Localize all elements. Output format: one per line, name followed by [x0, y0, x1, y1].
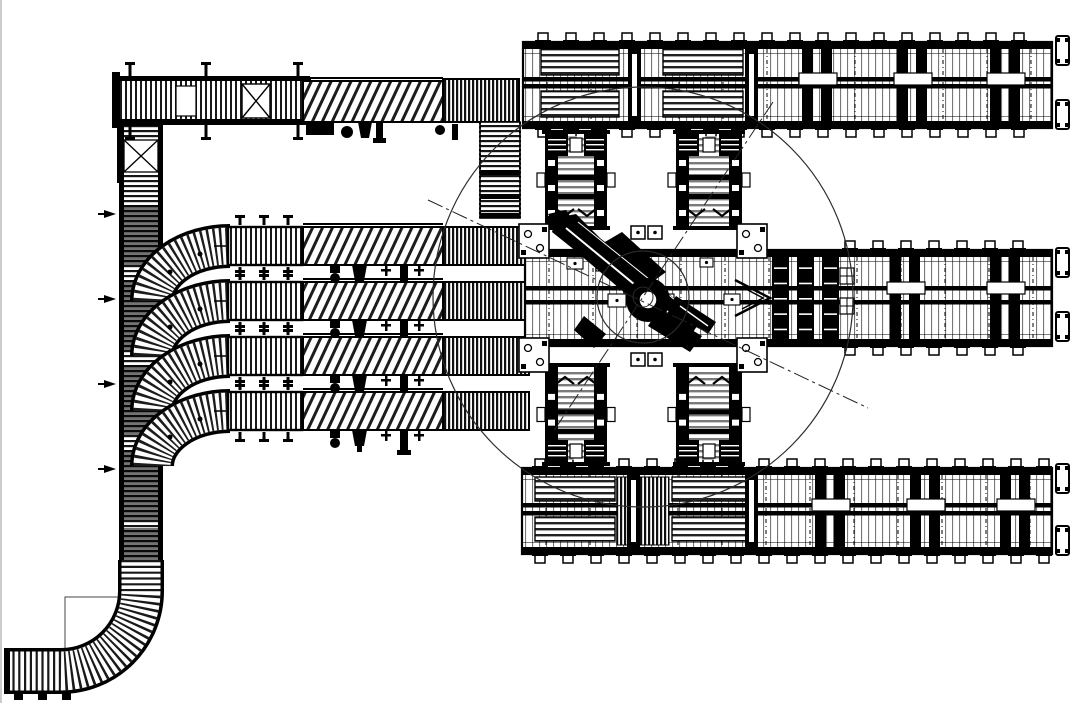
pallet-position — [541, 91, 619, 117]
pallet-position — [535, 517, 615, 541]
pallet-position — [535, 477, 615, 501]
end-bumper — [1056, 248, 1069, 277]
branch-lanes — [152, 215, 529, 466]
top-roller-section — [443, 79, 519, 122]
robot-anchor-plate — [737, 338, 767, 372]
cad-drawing-page — [0, 0, 1080, 703]
straight-roller-section — [228, 392, 302, 430]
end-bumper — [1056, 526, 1069, 555]
side-foot — [742, 173, 750, 187]
top-belt-conveyor — [303, 81, 443, 122]
pallet-line-top — [523, 33, 1069, 137]
side-foot — [607, 173, 615, 187]
roller-section — [443, 282, 529, 320]
straight-roller-section — [228, 227, 302, 265]
roller-section — [443, 392, 529, 430]
straight-roller-section — [228, 282, 302, 320]
roller-section — [443, 227, 529, 265]
pallet-position — [541, 49, 619, 75]
conveyor-end-cap — [112, 72, 120, 128]
pallet-position — [672, 477, 750, 501]
belt-conveyor — [303, 282, 443, 320]
pallet-line-bottom — [522, 459, 1069, 563]
roller-section — [443, 337, 529, 375]
belt-conveyor — [303, 227, 443, 265]
chain-transfer-down-left — [537, 363, 615, 466]
end-bumper — [1056, 100, 1069, 129]
pallet-position — [663, 91, 743, 117]
conveyor-foot — [14, 693, 23, 700]
conveyor-foot — [38, 693, 47, 700]
robot-anchor-plate — [519, 224, 549, 258]
pallet-position — [663, 49, 743, 75]
conveyor-layout-plan-svg — [0, 0, 1080, 703]
cross-brace-window — [242, 84, 270, 118]
robot-anchor-plate — [737, 224, 767, 258]
pallet-chain-lines — [522, 33, 1069, 563]
belt-conveyor — [303, 337, 443, 375]
infeed-roller-conveyor-top — [112, 72, 310, 128]
pallet-position — [672, 517, 750, 541]
conveyor-foot — [62, 693, 71, 700]
robot-anchor-plate — [519, 338, 549, 372]
end-bumper — [1056, 36, 1069, 65]
end-bumper — [1056, 312, 1069, 341]
side-foot — [537, 173, 545, 187]
side-foot — [607, 408, 615, 422]
left-edge-line — [0, 0, 2, 703]
inspection-window — [176, 86, 196, 116]
end-bumper — [1056, 464, 1069, 493]
belt-conveyor — [303, 392, 443, 430]
side-foot — [668, 173, 676, 187]
curve-end-cap — [4, 648, 10, 694]
side-foot — [668, 408, 676, 422]
side-foot — [742, 408, 750, 422]
straight-roller-section — [228, 337, 302, 375]
side-foot — [537, 408, 545, 422]
chain-transfer-up-right — [668, 130, 750, 230]
chain-transfer-down-right — [668, 363, 750, 466]
